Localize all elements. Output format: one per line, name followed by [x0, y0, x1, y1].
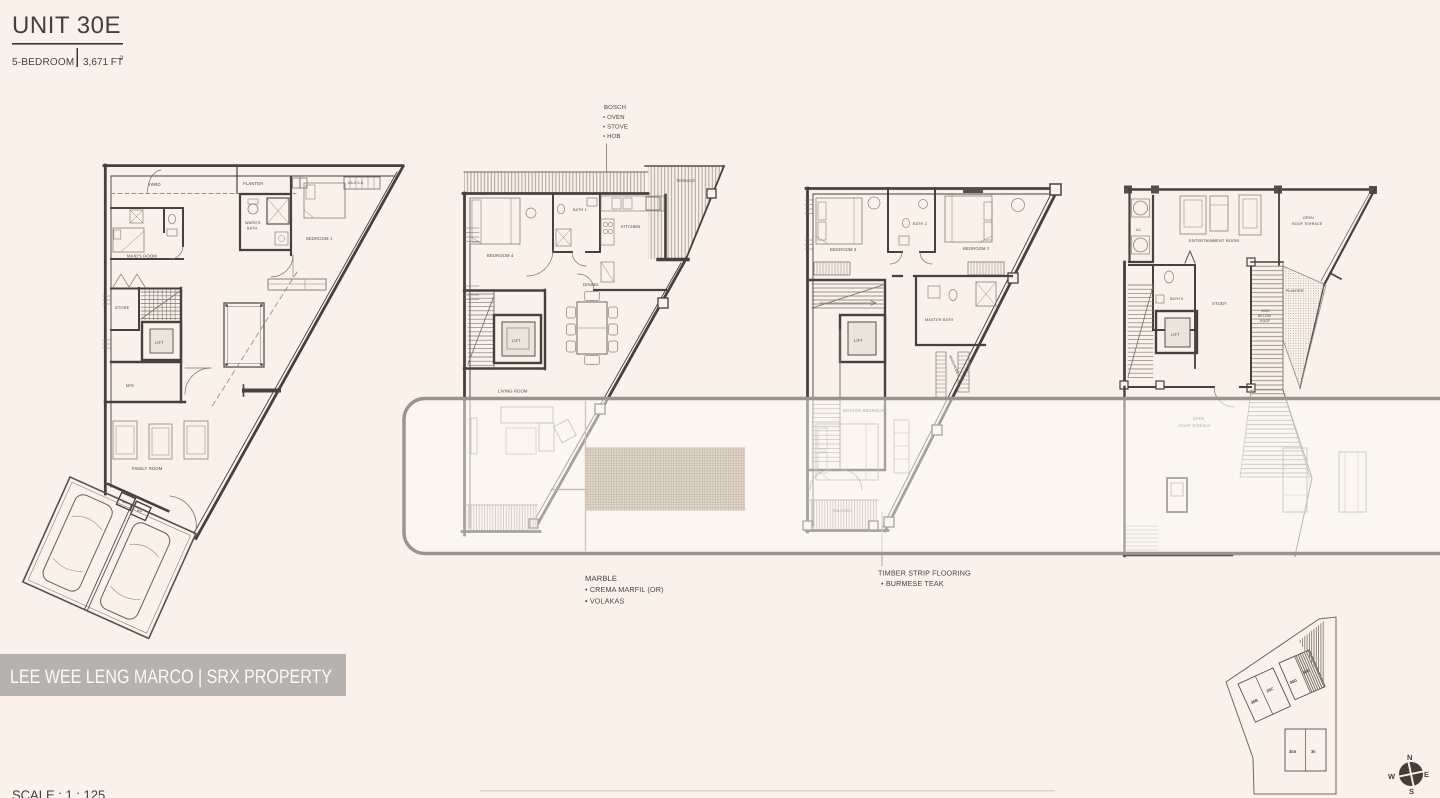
svg-text:BEDROOM 4: BEDROOM 4 [487, 253, 514, 258]
svg-text:ENTERTAINMENT ROOM: ENTERTAINMENT ROOM [1189, 238, 1239, 243]
svg-text:S: S [1409, 787, 1414, 796]
svg-text:STUDY: STUDY [1212, 301, 1227, 306]
svg-text:DINING: DINING [583, 282, 599, 287]
svg-text:BATH 2: BATH 2 [913, 222, 927, 226]
svg-text:BEDROOM 1: BEDROOM 1 [306, 236, 333, 241]
svg-text:LEE WEE LENG MARCO | SRX PROPE: LEE WEE LENG MARCO | SRX PROPERTY [10, 666, 332, 688]
svg-text:• OVEN: • OVEN [603, 114, 625, 121]
svg-text:2: 2 [120, 55, 124, 62]
svg-text:W: W [1388, 772, 1396, 781]
svg-text:BATH 5: BATH 5 [1170, 297, 1183, 301]
svg-text:BOSCH: BOSCH [604, 104, 626, 111]
svg-text:VOID: VOID [1261, 309, 1270, 313]
svg-text:30: 30 [1311, 749, 1316, 754]
svg-text:KITCHEN: KITCHEN [621, 224, 640, 229]
svg-text:PLANTER: PLANTER [1286, 289, 1304, 293]
svg-text:ROOF TERRACE: ROOF TERRACE [1292, 222, 1323, 226]
svg-text:WARD'S: WARD'S [245, 221, 261, 225]
svg-text:BEDROOM 3: BEDROOM 3 [830, 247, 857, 252]
svg-text:UNIT 30E: UNIT 30E [12, 12, 122, 39]
svg-text:BELOW: BELOW [1258, 314, 1272, 318]
svg-text:• VOLAKAS: • VOLAKAS [585, 597, 624, 606]
svg-text:DB-R S-R: DB-R S-R [348, 181, 364, 185]
svg-text:SCALE : 1 : 125: SCALE : 1 : 125 [12, 788, 105, 798]
svg-text:• BURMESE TEAK: • BURMESE TEAK [881, 579, 944, 588]
svg-text:• CREMA MARFIL (OR): • CREMA MARFIL (OR) [585, 585, 664, 594]
svg-text:BATH: BATH [247, 227, 258, 231]
svg-text:FAMILY ROOM: FAMILY ROOM [132, 466, 163, 471]
svg-text:5-BEDROOM: 5-BEDROOM [12, 57, 74, 68]
svg-text:MAID'S ROOM: MAID'S ROOM [127, 254, 157, 259]
svg-text:LIFT: LIFT [854, 338, 863, 343]
svg-text:STORE: STORE [115, 305, 130, 310]
svg-text:LIVING ROOM: LIVING ROOM [498, 389, 528, 394]
svg-text:BEDROOM 2: BEDROOM 2 [963, 246, 990, 251]
svg-text:TERRACE: TERRACE [676, 179, 696, 183]
svg-text:30A: 30A [1289, 749, 1296, 754]
svg-text:• HOB: • HOB [603, 133, 621, 140]
svg-text:LIFT: LIFT [512, 338, 521, 343]
svg-text:ROOF: ROOF [1260, 319, 1270, 323]
svg-text:LIFT: LIFT [155, 340, 164, 345]
svg-text:E: E [1424, 770, 1429, 779]
svg-text:YARD: YARD [148, 182, 161, 187]
svg-text:OPEN: OPEN [1303, 216, 1314, 220]
svg-text:BATH 1: BATH 1 [573, 208, 587, 212]
svg-text:N: N [1407, 753, 1412, 762]
svg-text:• STOVE: • STOVE [603, 124, 628, 131]
svg-text:TIMBER STRIP FLOORING: TIMBER STRIP FLOORING [878, 569, 971, 578]
svg-text:PLANTER: PLANTER [243, 181, 263, 186]
svg-text:LIFT: LIFT [1171, 332, 1180, 337]
svg-text:MASTER BATH: MASTER BATH [925, 318, 953, 322]
svg-text:3,671 FT: 3,671 FT [83, 57, 123, 68]
svg-text:AC: AC [1136, 228, 1142, 232]
svg-text:M/S: M/S [126, 383, 134, 388]
svg-text:MARBLE: MARBLE [585, 574, 617, 583]
